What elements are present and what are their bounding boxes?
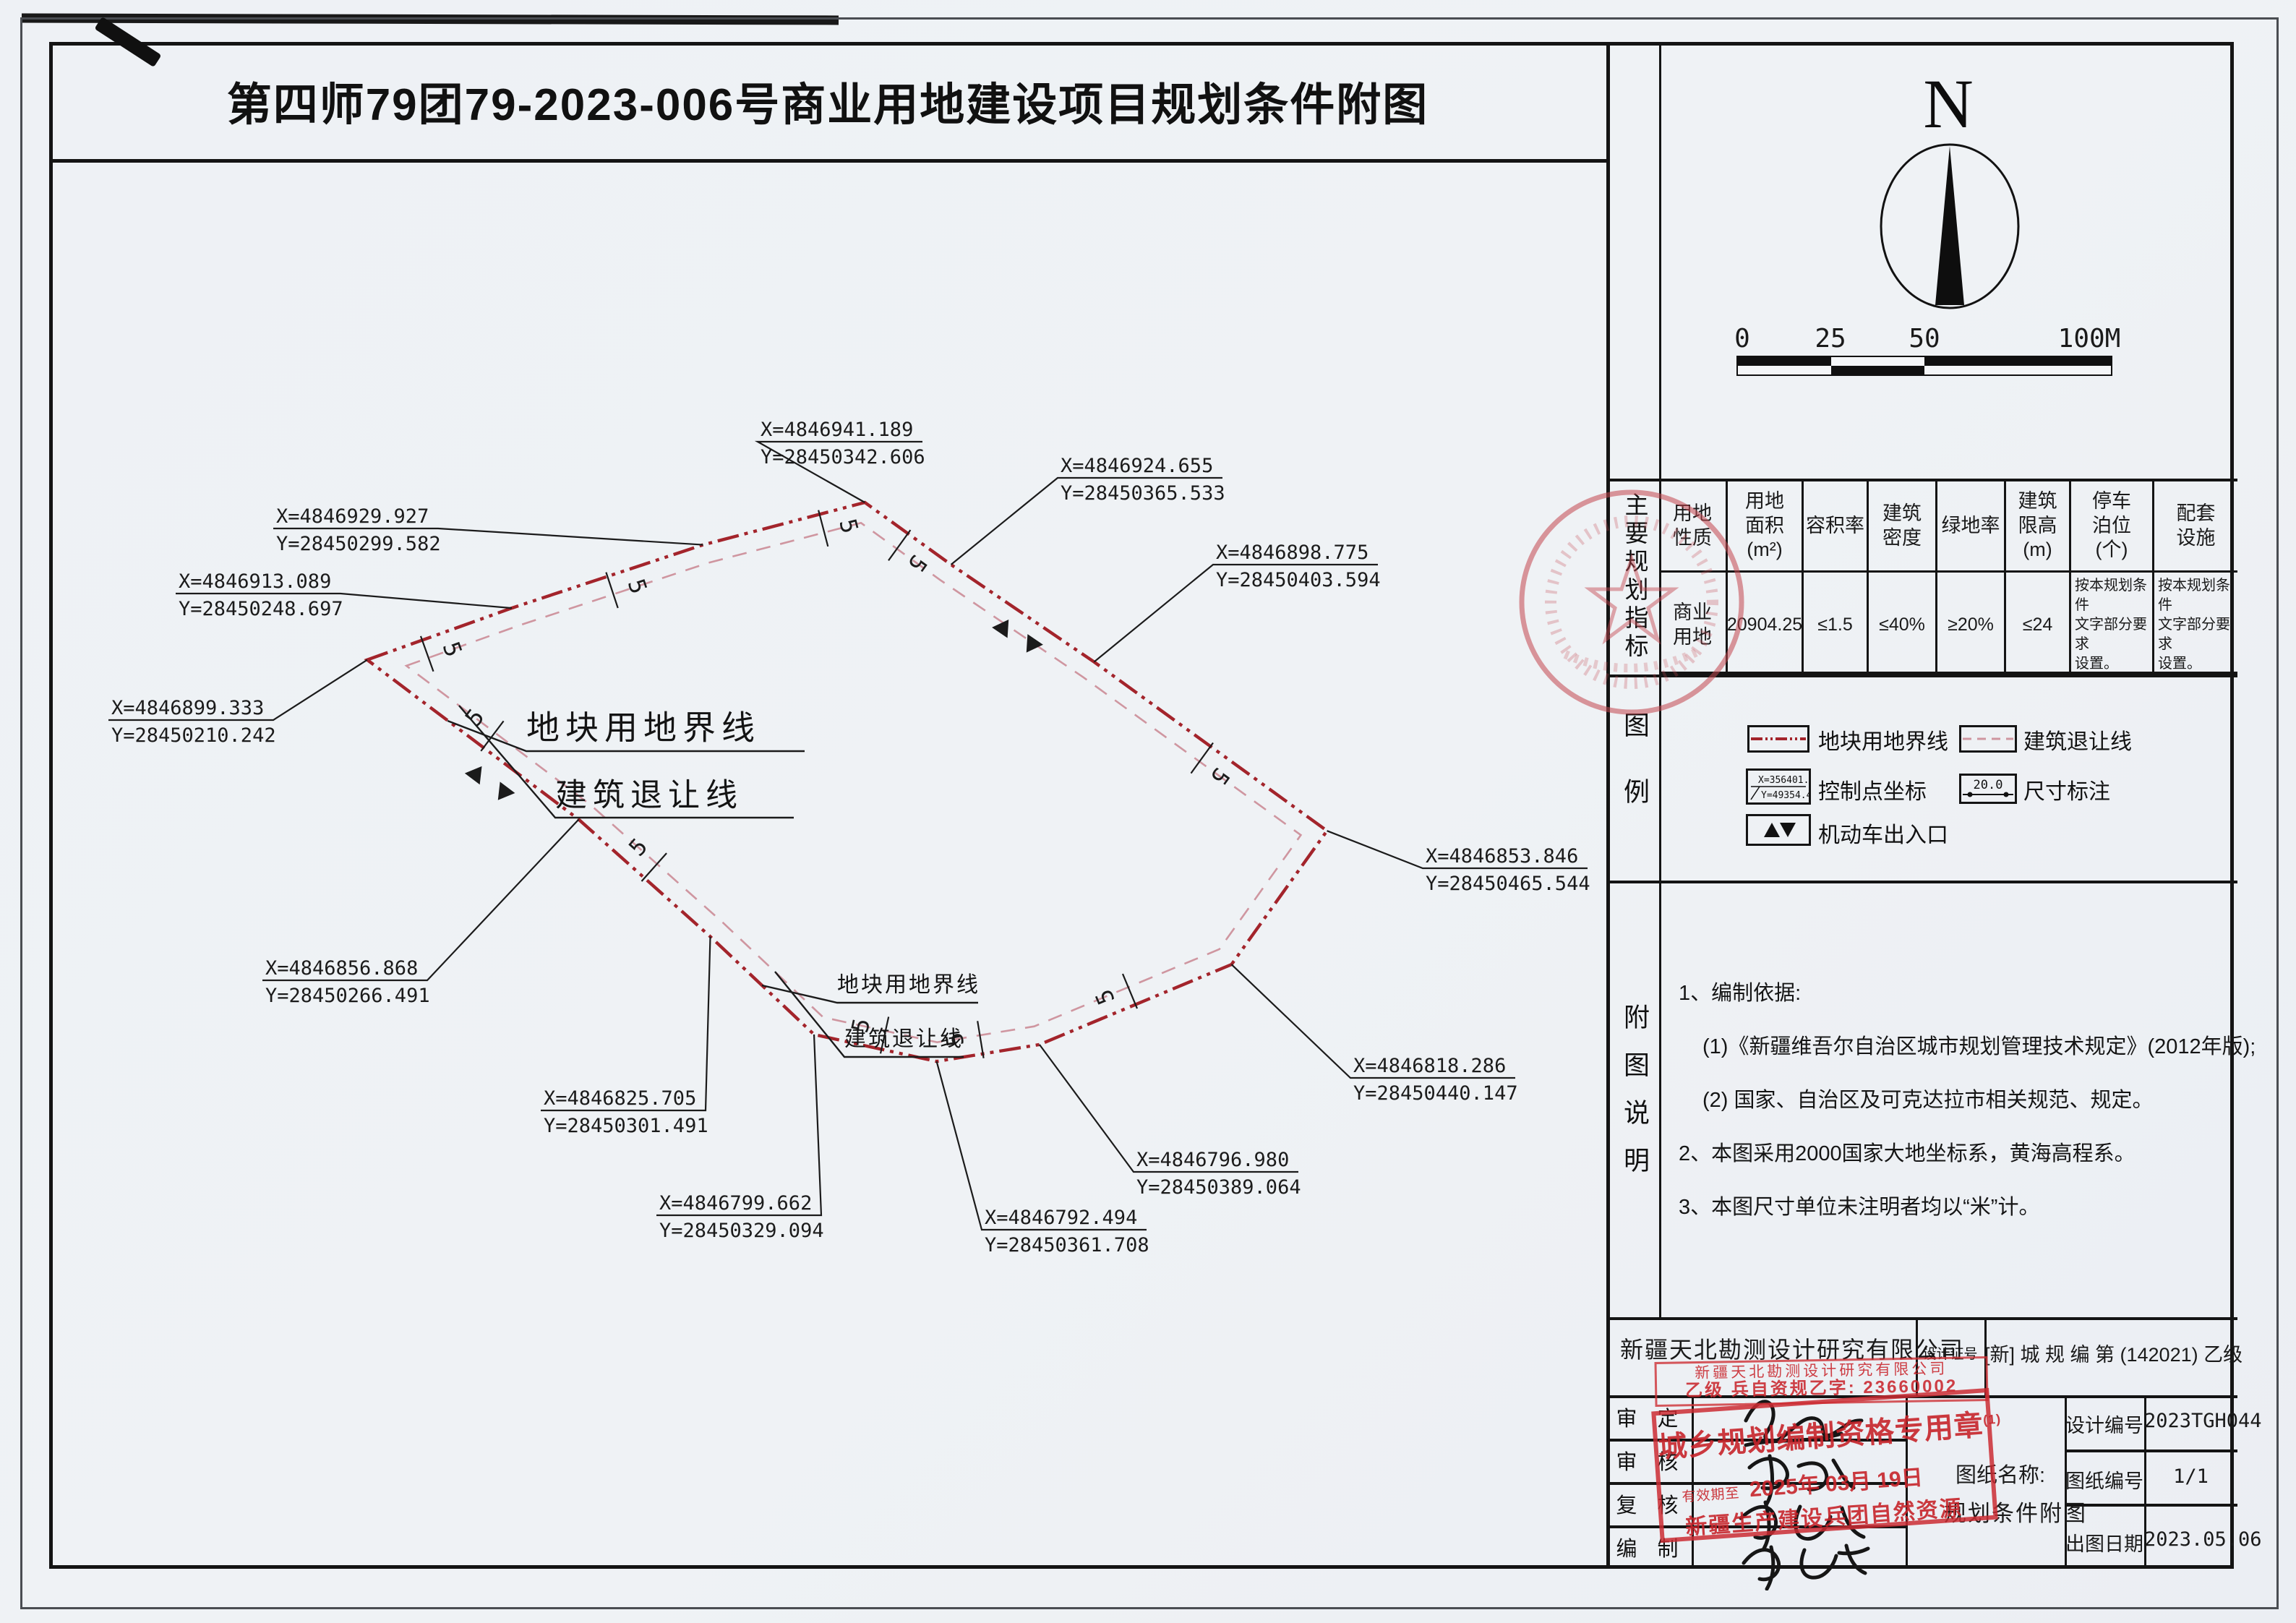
- col-header: 用地 面积 (m²): [1728, 481, 1804, 573]
- field-value: 2023TGH044: [2144, 1410, 2237, 1432]
- svg-text:Y=28450210.242: Y=28450210.242: [111, 724, 276, 747]
- scale-tick: 50: [1909, 324, 1940, 354]
- col-header: 停车 泊位 (个): [2071, 481, 2154, 573]
- field-label: 设计编号: [2065, 1410, 2144, 1438]
- scale-tick: 0: [1734, 324, 1750, 354]
- cell-land-use: 商业 用地: [1659, 573, 1728, 677]
- legend-label-boundary: 地块用地界线: [1818, 724, 1948, 755]
- setback-line-icon: [1961, 727, 2015, 750]
- field-value: 1/1: [2144, 1465, 2237, 1488]
- cell-facilities: 按本规划条件 文字部分要求 设置。: [2154, 573, 2237, 677]
- svg-text:Y=28450329.094: Y=28450329.094: [659, 1220, 824, 1242]
- svg-text:Y=28450465.544: Y=28450465.544: [1426, 873, 1590, 895]
- map-line-label: 地块用地界线: [447, 708, 805, 751]
- cell-green-ratio: ≥20%: [1937, 573, 2006, 677]
- legend-swatch-entrance: [1746, 814, 1811, 846]
- note-line: 1、编制依据:: [1679, 976, 1801, 1006]
- col-header: 建筑 密度: [1869, 481, 1937, 573]
- north-label: N: [1876, 64, 2021, 144]
- vertex-callout: X=4846792.494Y=28450361.708: [937, 1061, 1149, 1256]
- svg-text:Y=28450299.582: Y=28450299.582: [276, 533, 441, 555]
- vertex-callout: X=4846899.333Y=28450210.242: [108, 660, 367, 747]
- setback-dimensions: 5555555555: [421, 510, 1235, 1058]
- svg-text:X=4846913.089: X=4846913.089: [179, 570, 331, 593]
- note-line: 3、本图尺寸单位未注明者均以“米”计。: [1679, 1190, 2039, 1220]
- vehicle-entrance-icon: [1748, 816, 1809, 844]
- scale-bar-labels: 0 25 50 100M: [1736, 324, 2112, 356]
- field-label: 出图日期: [2065, 1528, 2144, 1556]
- field-label: 图纸编号: [2065, 1465, 2144, 1494]
- svg-text:5: 5: [1205, 763, 1235, 790]
- scale-tick: 25: [1815, 324, 1846, 354]
- stamp-superscript: (1): [1982, 1412, 2001, 1428]
- svg-text:Y=28450342.606: Y=28450342.606: [761, 446, 925, 468]
- license-number: [新] 城 规 编 第 (142021) 乙级: [1984, 1339, 2237, 1367]
- vertex-callout: X=4846799.662Y=28450329.094: [656, 1035, 824, 1242]
- col-header: 建筑 限高 (m): [2006, 481, 2071, 573]
- scale-tick: 100M: [2058, 324, 2121, 354]
- legend-swatch-controlpoint: X=356401.88 Y=49354.43: [1746, 768, 1811, 805]
- svg-text:Y=28450440.147: Y=28450440.147: [1353, 1082, 1518, 1105]
- vertex-callout: X=4846853.846Y=28450465.544: [1327, 831, 1590, 895]
- cell-density: ≤40%: [1869, 573, 1937, 677]
- svg-text:5: 5: [437, 638, 468, 661]
- svg-text:5: 5: [834, 516, 864, 536]
- svg-text:X=4846941.189: X=4846941.189: [761, 419, 913, 441]
- svg-text:5: 5: [1089, 985, 1120, 1009]
- vertex-callout: X=4846898.775Y=28450403.594: [1094, 541, 1380, 662]
- svg-text:Y=28450389.064: Y=28450389.064: [1136, 1176, 1301, 1199]
- svg-text:X=4846924.655: X=4846924.655: [1061, 455, 1213, 477]
- right-panel: 主要规划指标 图例 附图说明 N 0 25 50 100M 用地 性质 用地 面…: [1606, 42, 2234, 1569]
- vertex-callout: X=4846929.927Y=28450299.582: [273, 505, 703, 555]
- note-line: 2、本图采用2000国家大地坐标系，黄海高程系。: [1679, 1136, 2136, 1167]
- svg-text:Y=28450361.708: Y=28450361.708: [985, 1234, 1149, 1256]
- label-column-divider: [1659, 42, 1661, 1317]
- site-plan-map: 5555555555X=4846899.333Y=28450210.242X=4…: [49, 163, 1606, 1569]
- col-header: 配套 设施: [2154, 481, 2237, 573]
- note-line: (2) 国家、自治区及可克达拉市相关规范、规定。: [1702, 1083, 2154, 1113]
- legend-label-controlpoint: 控制点坐标: [1818, 774, 1927, 805]
- svg-text:5: 5: [622, 575, 653, 597]
- cell-parking: 按本规划条件 文字部分要求 设置。: [2071, 573, 2154, 677]
- stamp-title: 城乡规划编制资格专用章: [1657, 1410, 1984, 1464]
- svg-text:X=4846799.662: X=4846799.662: [659, 1192, 812, 1215]
- north-arrow-icon: [1856, 136, 2044, 317]
- svg-text:X=4846899.333: X=4846899.333: [111, 697, 264, 719]
- col-header: 容积率: [1804, 481, 1869, 573]
- cell-land-area: 20904.25: [1728, 573, 1804, 677]
- titleblock-line: [2065, 1504, 2237, 1507]
- svg-text:X=4846853.846: X=4846853.846: [1426, 845, 1578, 868]
- cell-height-limit: ≤24: [2006, 573, 2071, 677]
- col-header: 用地 性质: [1659, 481, 1728, 573]
- vertex-callout: X=4846913.089Y=28450248.697: [176, 570, 512, 620]
- svg-text:X=4846898.775: X=4846898.775: [1216, 541, 1368, 564]
- field-value: 2023.05.06: [2144, 1528, 2237, 1551]
- svg-text:X=4846825.705: X=4846825.705: [544, 1087, 696, 1110]
- control-point-icon: X=356401.88 Y=49354.43: [1748, 771, 1809, 802]
- svg-text:20.0: 20.0: [1974, 778, 2003, 792]
- note-line: (1)《新疆维吾尔自治区城市规划管理技术规定》(2012年版);: [1702, 1029, 2256, 1060]
- legend-label-setback: 建筑退让线: [2023, 724, 2132, 755]
- svg-text:Y=28450248.697: Y=28450248.697: [179, 598, 343, 620]
- svg-text:5: 5: [902, 550, 933, 578]
- planning-qualification-stamp: 城乡规划编制资格专用章(1) 有效期至2025年 03月 19日 新疆生产建设兵…: [1651, 1388, 1998, 1543]
- svg-text:地块用地界线: 地块用地界线: [837, 973, 980, 997]
- stamp-valid-label: 有效期至: [1682, 1486, 1740, 1505]
- vertex-callout: X=4846818.286Y=28450440.147: [1232, 964, 1518, 1105]
- legend-swatch-dimension: 20.0: [1959, 774, 2017, 804]
- legend-label-dimension: 尺寸标注: [2023, 774, 2110, 805]
- title-bar: 第四师79团79-2023-006号商业用地建设项目规划条件附图: [49, 42, 1606, 163]
- cell-far: ≤1.5: [1804, 573, 1869, 677]
- planning-indicators-table: 用地 性质 用地 面积 (m²) 容积率 建筑 密度 绿地率 建筑 限高 (m)…: [1659, 479, 2237, 675]
- section-divider: [1610, 881, 2237, 883]
- legend-swatch-boundary: [1747, 725, 1809, 753]
- svg-text:X=4846792.494: X=4846792.494: [985, 1207, 1137, 1229]
- svg-text:5: 5: [623, 833, 653, 862]
- vertex-callout: X=4846924.655Y=28450365.533: [951, 455, 1225, 565]
- vertex-callout: X=4846796.980Y=28450389.064: [1040, 1045, 1301, 1199]
- scale-bar-graphic: [1736, 356, 2112, 376]
- legend-label-entrance: 机动车出入口: [1818, 817, 1948, 849]
- svg-text:地块用地界线: 地块用地界线: [526, 708, 761, 746]
- svg-text:Y=28450301.491: Y=28450301.491: [544, 1115, 708, 1137]
- vertex-callout: X=4846941.189Y=28450342.606: [758, 419, 925, 502]
- scale-bar: 0 25 50 100M: [1736, 324, 2112, 376]
- svg-text:X=4846818.286: X=4846818.286: [1353, 1055, 1506, 1077]
- scanned-paper: 第四师79团79-2023-006号商业用地建设项目规划条件附图 5555555…: [0, 0, 2296, 1623]
- svg-text:Y=28450365.533: Y=28450365.533: [1061, 482, 1225, 505]
- legend-swatch-setback: [1959, 725, 2017, 753]
- map-line-label: 地块用地界线: [762, 973, 980, 1003]
- dimension-icon: 20.0: [1961, 776, 2015, 802]
- svg-text:Y=28450266.491: Y=28450266.491: [265, 985, 430, 1007]
- svg-text:建筑退让线: 建筑退让线: [555, 778, 743, 813]
- svg-text:Y=28450403.594: Y=28450403.594: [1216, 569, 1381, 591]
- svg-text:X=4846929.927: X=4846929.927: [276, 505, 429, 528]
- svg-text:X=356401.88: X=356401.88: [1758, 775, 1809, 786]
- vertex-callout: X=4846856.868Y=28450266.491: [262, 819, 578, 1007]
- page-title: 第四师79团79-2023-006号商业用地建设项目规划条件附图: [227, 68, 1429, 133]
- boundary-line-icon: [1749, 727, 1807, 750]
- section-label-legend: 图例: [1610, 675, 1659, 881]
- setback-line: [406, 523, 1301, 1042]
- svg-text:X=4846796.980: X=4846796.980: [1136, 1149, 1289, 1171]
- titleblock-line: [2065, 1449, 2237, 1452]
- svg-text:Y=49354.43: Y=49354.43: [1761, 790, 1809, 801]
- section-label-indicators: 主要规划指标: [1610, 479, 1659, 675]
- svg-text:X=4846856.868: X=4846856.868: [265, 957, 418, 980]
- section-label-notes: 附图说明: [1610, 881, 1659, 1317]
- col-header: 绿地率: [1937, 481, 2006, 573]
- vertex-callout: X=4846825.705Y=28450301.491: [541, 937, 710, 1137]
- svg-text:建筑退让线: 建筑退让线: [844, 1027, 964, 1051]
